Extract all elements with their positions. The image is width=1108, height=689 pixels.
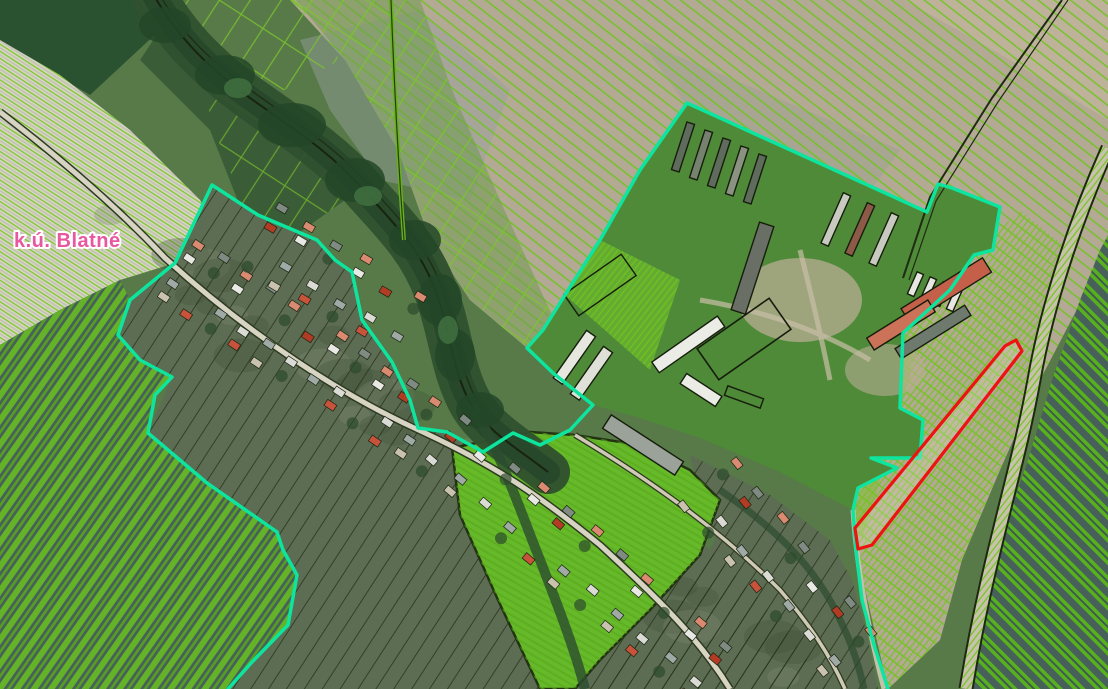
village-tree — [500, 473, 512, 485]
village-tree — [852, 636, 864, 648]
village-tree — [717, 469, 729, 481]
village-tree — [702, 527, 714, 539]
village-tree — [770, 610, 782, 622]
village-tree — [350, 362, 362, 374]
cadastral-map-canvas[interactable]: k.ú. Blatné — [0, 0, 1108, 689]
village-tree — [421, 409, 433, 421]
village-tree — [205, 323, 217, 335]
village-tree — [279, 314, 291, 326]
village-tree — [241, 261, 253, 273]
village-tree — [326, 311, 338, 323]
village-tree — [276, 370, 288, 382]
village-tree — [579, 540, 591, 552]
village-tree — [495, 532, 507, 544]
village-tree — [574, 599, 586, 611]
village-tree — [785, 552, 797, 564]
map-viewport[interactable]: k.ú. Blatné — [0, 0, 1108, 689]
village-tree — [347, 417, 359, 429]
village-tree — [658, 607, 670, 619]
village-tree — [208, 267, 220, 279]
territory-label: k.ú. Blatné — [14, 230, 121, 252]
village-tree — [416, 465, 428, 477]
village-tree — [653, 666, 665, 678]
village-tree — [407, 303, 419, 315]
